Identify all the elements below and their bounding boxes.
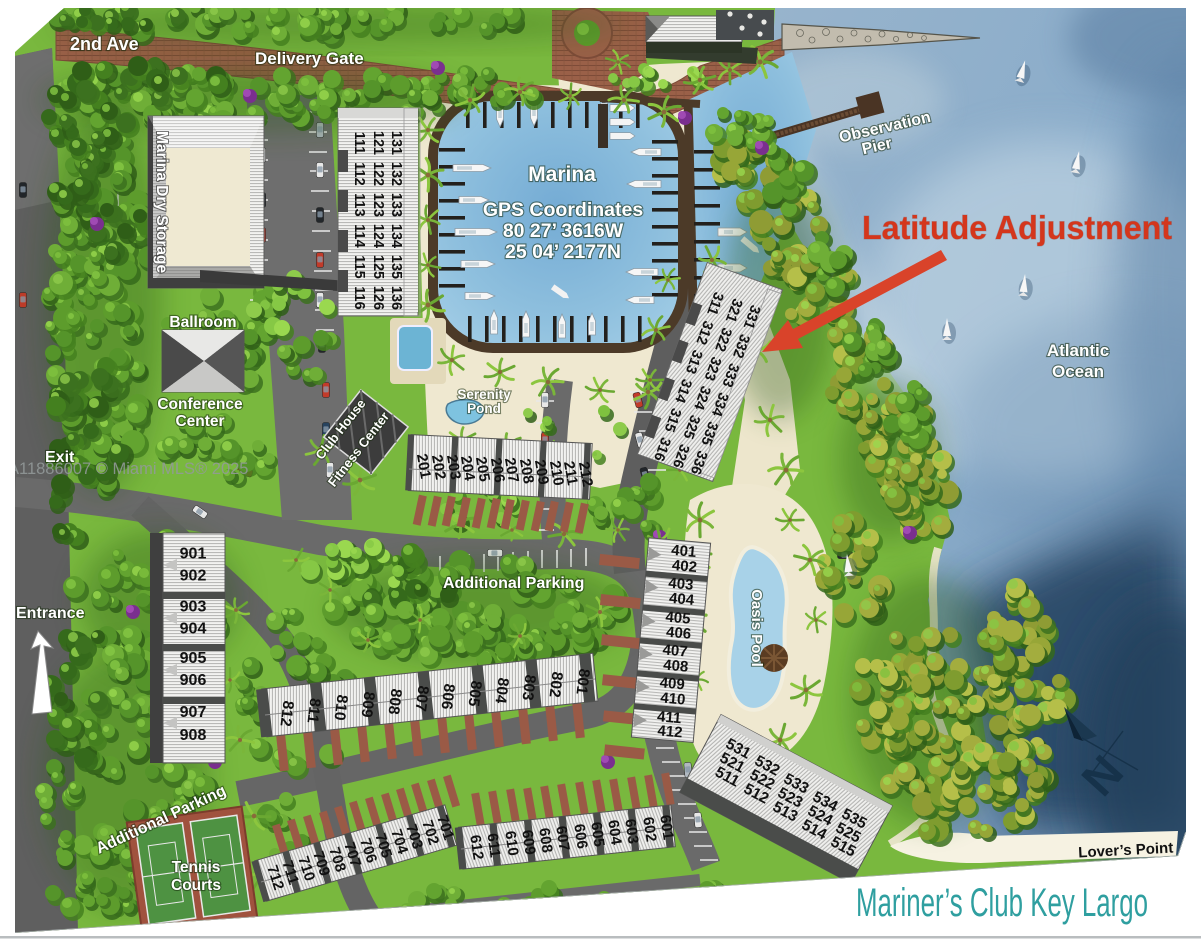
svg-text:25 04’ 2177N: 25 04’ 2177N (505, 241, 621, 263)
svg-text:605: 605 (587, 821, 607, 848)
svg-text:903: 903 (180, 599, 207, 616)
svg-text:125: 125 (370, 255, 386, 279)
svg-text:GPS Coordinates: GPS Coordinates (483, 199, 644, 221)
svg-text:Courts: Courts (171, 877, 221, 894)
svg-text:809: 809 (357, 691, 377, 719)
svg-text:135: 135 (388, 255, 404, 279)
svg-text:408: 408 (663, 657, 689, 676)
svg-text:806: 806 (437, 683, 457, 711)
svg-text:608: 608 (535, 827, 555, 854)
svg-text:803: 803 (518, 674, 538, 702)
svg-text:113: 113 (351, 193, 367, 216)
svg-text:Serenity: Serenity (457, 387, 511, 402)
svg-text:Center: Center (175, 413, 224, 430)
svg-text:611: 611 (483, 832, 503, 858)
svg-text:810: 810 (330, 694, 350, 722)
svg-text:811: 811 (303, 697, 323, 724)
svg-text:Delivery Gate: Delivery Gate (255, 49, 364, 68)
svg-text:Entrance: Entrance (16, 605, 85, 622)
svg-text:906: 906 (180, 672, 207, 689)
svg-text:Latitude Adjustment: Latitude Adjustment (862, 209, 1172, 246)
svg-text:901: 901 (180, 546, 207, 563)
svg-text:610: 610 (501, 830, 521, 857)
svg-text:A11886007 © Miami MLS® 2025: A11886007 © Miami MLS® 2025 (8, 460, 248, 478)
svg-text:2nd Ave: 2nd Ave (70, 34, 139, 54)
svg-text:802: 802 (545, 671, 565, 699)
svg-text:134: 134 (388, 224, 404, 248)
svg-text:133: 133 (388, 193, 404, 217)
svg-text:908: 908 (180, 727, 207, 744)
svg-text:609: 609 (518, 829, 538, 856)
svg-text:402: 402 (671, 557, 697, 576)
svg-text:Marina Dry Storage: Marina Dry Storage (153, 131, 170, 274)
svg-text:80 27’ 3616W: 80 27’ 3616W (503, 220, 624, 242)
svg-text:604: 604 (604, 819, 624, 847)
svg-text:Oasis Pool: Oasis Pool (748, 589, 765, 667)
svg-text:804: 804 (491, 677, 511, 705)
svg-text:601: 601 (656, 814, 676, 841)
svg-text:123: 123 (370, 193, 386, 217)
svg-text:Mariner’s Club Key Largo: Mariner’s Club Key Largo (856, 881, 1148, 925)
svg-text:Tennis: Tennis (172, 859, 221, 876)
svg-text:122: 122 (370, 162, 386, 186)
svg-text:115: 115 (351, 255, 367, 278)
svg-text:136: 136 (388, 286, 404, 310)
svg-text:801: 801 (572, 668, 592, 696)
svg-text:Marina: Marina (528, 163, 596, 186)
svg-text:131: 131 (388, 131, 404, 155)
svg-text:807: 807 (411, 685, 431, 713)
svg-text:606: 606 (570, 823, 590, 850)
svg-text:812: 812 (276, 700, 296, 728)
svg-text:907: 907 (180, 704, 207, 721)
svg-text:Pond: Pond (467, 401, 501, 416)
svg-text:412: 412 (657, 722, 683, 741)
svg-text:112: 112 (351, 162, 367, 185)
svg-text:612: 612 (466, 834, 486, 861)
svg-text:808: 808 (384, 688, 404, 716)
svg-text:Ballroom: Ballroom (169, 314, 236, 331)
svg-text:Additional Parking: Additional Parking (443, 575, 584, 592)
svg-text:111: 111 (351, 132, 367, 155)
svg-text:126: 126 (370, 286, 386, 310)
svg-text:607: 607 (552, 825, 572, 852)
svg-text:Ocean: Ocean (1052, 362, 1104, 381)
svg-text:Atlantic: Atlantic (1047, 341, 1109, 360)
svg-text:904: 904 (180, 621, 207, 638)
svg-text:404: 404 (668, 590, 695, 609)
svg-text:805: 805 (464, 680, 484, 708)
svg-text:410: 410 (660, 689, 686, 708)
svg-text:124: 124 (370, 224, 386, 248)
svg-text:603: 603 (621, 818, 641, 845)
svg-text:132: 132 (388, 162, 404, 186)
svg-text:406: 406 (665, 624, 691, 643)
svg-text:902: 902 (180, 568, 207, 585)
svg-text:114: 114 (351, 224, 367, 247)
svg-text:121: 121 (370, 131, 386, 155)
svg-text:116: 116 (351, 286, 367, 309)
svg-text:Conference: Conference (157, 396, 243, 413)
svg-text:905: 905 (180, 650, 207, 667)
svg-text:602: 602 (639, 816, 659, 843)
